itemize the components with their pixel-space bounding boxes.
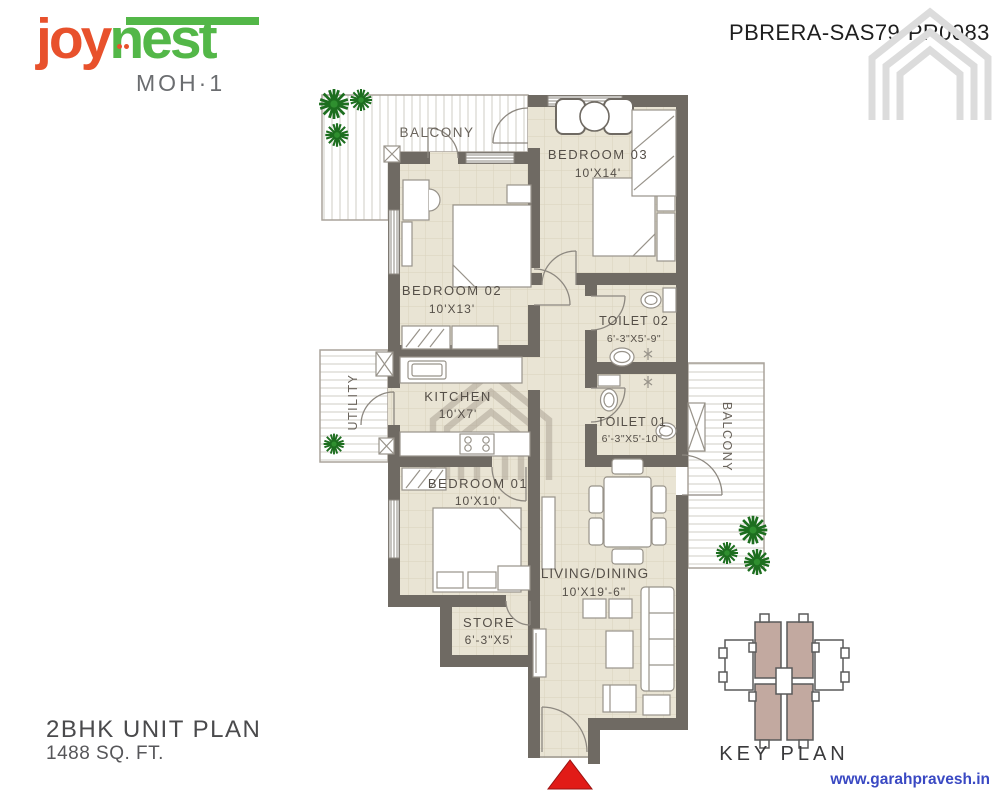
room-dim-toilet-02: 6'-3"X5'-9"	[607, 333, 661, 345]
room-label-store: STORE	[463, 615, 515, 630]
room-label-living-dining: LIVING/DINING	[541, 566, 649, 581]
room-label-balcony-top: BALCONY	[399, 125, 474, 140]
room-label-kitchen: KITCHEN	[424, 389, 492, 404]
room-dim-store: 6'-3"X5'	[465, 633, 514, 647]
floor-plan-svg: BALCONY BEDROOM 03 10'X14' BEDROOM 02 10…	[0, 0, 1000, 800]
watermark-corner-icon	[872, 12, 988, 120]
room-dim-bedroom-02: 10'X13'	[429, 302, 475, 316]
room-label-toilet-01: TOILET 01	[597, 415, 667, 429]
room-label-balcony-right: BALCONY	[720, 402, 734, 472]
room-dim-toilet-01: 6'-3"X5'-10"	[602, 433, 663, 445]
room-dim-bedroom-03: 10'X14'	[575, 166, 621, 180]
room-dim-living-dining: 10'X19'-6"	[562, 585, 626, 599]
room-label-bedroom-02: BEDROOM 02	[402, 283, 502, 298]
keyplan-label: KEY PLAN	[719, 743, 848, 765]
room-label-utility: UTILITY	[346, 373, 360, 430]
room-dim-bedroom-01: 10'X10'	[455, 494, 501, 508]
page: joynest MOH·1 PBRERA-SAS79-PR0083 2BHK U…	[0, 0, 1000, 800]
room-label-bedroom-03: BEDROOM 03	[548, 147, 648, 162]
room-dim-kitchen: 10'X7'	[439, 407, 478, 421]
room-label-bedroom-01: BEDROOM 01	[428, 476, 528, 491]
entry-arrow-icon	[548, 760, 592, 789]
room-label-toilet-02: TOILET 02	[599, 314, 669, 328]
keyplan-diagram	[719, 614, 849, 748]
